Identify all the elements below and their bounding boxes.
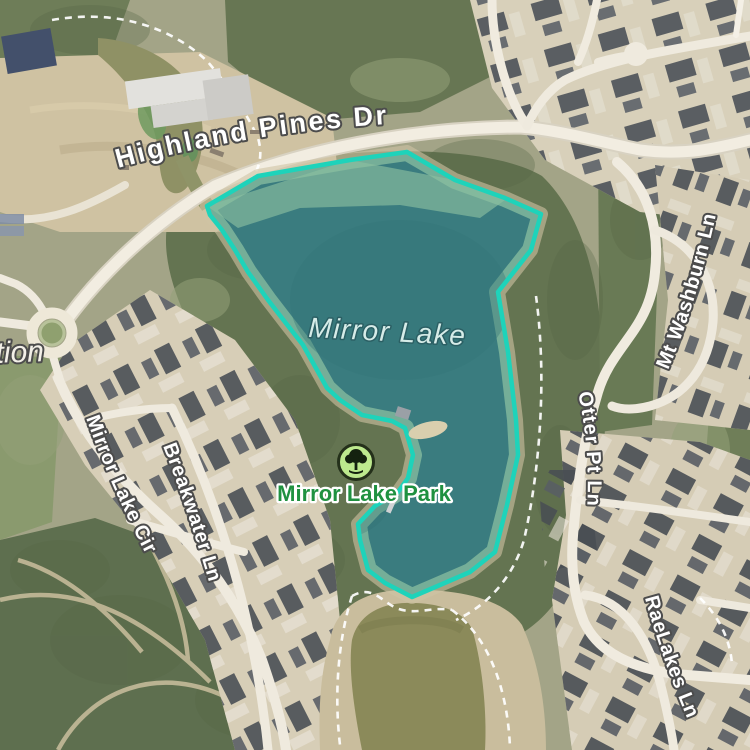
cul-de-sac (624, 42, 648, 66)
satellite-map-viewport[interactable]: Highland Pines Dr Mirror Lake Mirror Lak… (0, 0, 750, 750)
court-rect (0, 226, 24, 236)
area-label-partial: tion (0, 335, 44, 370)
satellite-map[interactable]: Highland Pines Dr Mirror Lake Mirror Lak… (0, 0, 750, 750)
park-label[interactable]: Mirror Lake Park (277, 481, 451, 506)
court-rect (0, 214, 24, 224)
